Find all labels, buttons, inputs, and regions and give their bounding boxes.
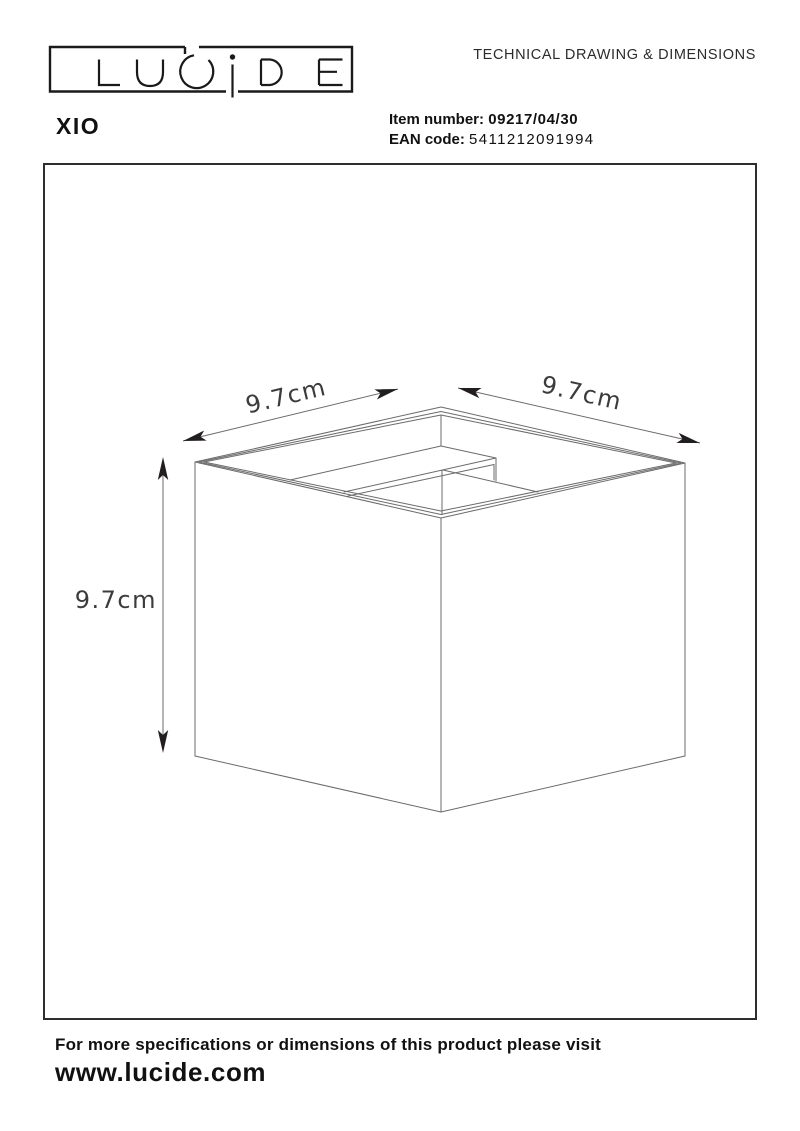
ean-row: EAN code: 5411212091994	[389, 130, 595, 150]
width-dimension-left: 9.7cm	[182, 373, 399, 446]
arrow-left-icon	[182, 431, 207, 447]
height-dimension-label: 9.7cm	[75, 586, 157, 614]
height-dimension: 9.7cm	[75, 457, 168, 753]
product-name: XIO	[56, 113, 100, 140]
arrow-right-icon	[374, 384, 399, 400]
cube-technical-drawing: 9.7cm 9.7cm 9.7cm	[43, 163, 757, 1020]
logo-border	[50, 47, 352, 92]
ean-label: EAN code:	[389, 131, 465, 148]
footer-note: For more specifications or dimensions of…	[55, 1035, 601, 1055]
item-number-row: Item number: 09217/04/30	[389, 110, 595, 130]
width-dimension-left-label: 9.7cm	[243, 373, 330, 420]
product-codes: Item number: 09217/04/30 EAN code: 54112…	[389, 110, 595, 150]
website-url: www.lucide.com	[55, 1057, 266, 1088]
cube-outline	[195, 407, 685, 812]
cube-top-rim	[199, 412, 681, 515]
lucide-logo	[45, 42, 360, 104]
item-number-value: 09217/04/30	[488, 111, 578, 128]
document-title: TECHNICAL DRAWING & DIMENSIONS	[356, 47, 756, 63]
arrow-left-icon	[457, 383, 482, 398]
arrow-right-icon	[676, 433, 701, 448]
item-number-label: Item number:	[389, 111, 484, 128]
cube-inner-structure	[290, 415, 538, 515]
width-dimension-right: 9.7cm	[457, 370, 701, 448]
ean-value: 5411212091994	[469, 131, 595, 148]
